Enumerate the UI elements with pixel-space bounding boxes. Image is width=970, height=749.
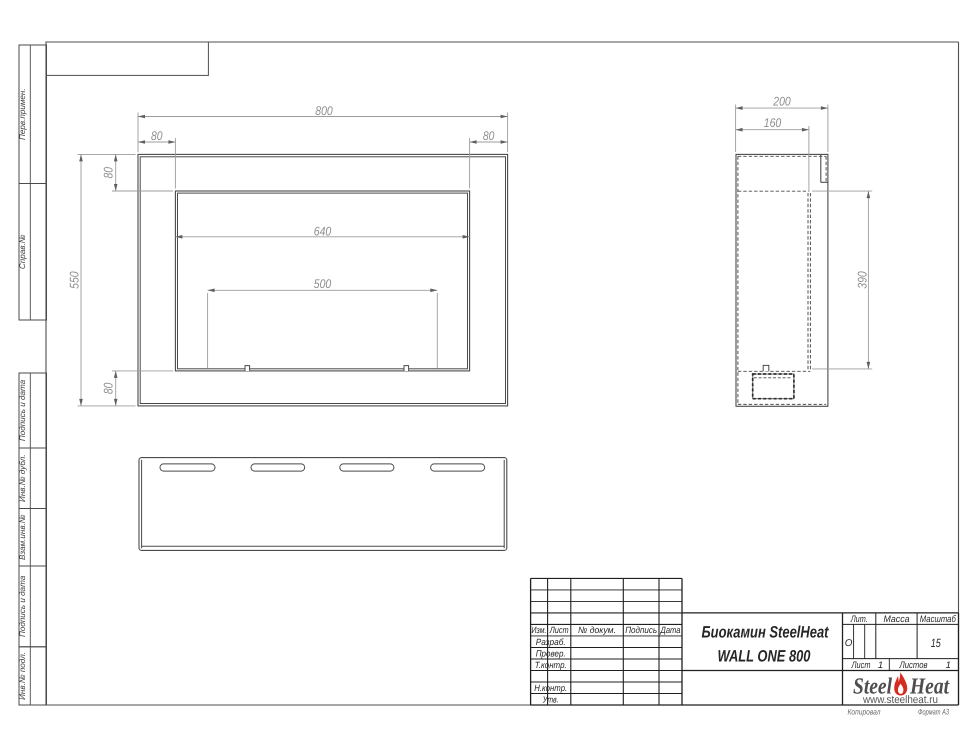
svg-text:Изм.: Изм.: [532, 625, 547, 635]
svg-text:Т.контр.: Т.контр.: [535, 660, 567, 670]
svg-text:15: 15: [931, 636, 941, 650]
svg-text:Инв.№ подл.: Инв.№ подл.: [18, 652, 27, 700]
svg-text:Н.контр.: Н.контр.: [534, 683, 567, 693]
svg-text:Справ.№: Справ.№: [18, 234, 27, 269]
svg-text:80: 80: [101, 383, 115, 395]
svg-text:Лист: Лист: [549, 625, 569, 635]
svg-text:80: 80: [483, 129, 495, 143]
svg-text:Подпись: Подпись: [625, 625, 657, 635]
svg-text:№ докум.: № докум.: [578, 625, 616, 635]
svg-text:200: 200: [772, 95, 790, 109]
svg-text:Разраб.: Разраб.: [536, 637, 566, 647]
svg-text:WALL ONE 800: WALL ONE 800: [718, 648, 812, 666]
svg-text:Лист: Лист: [851, 660, 871, 671]
svg-text:Подпись и дата: Подпись и дата: [18, 575, 27, 637]
svg-text:Дата: Дата: [660, 625, 681, 635]
svg-text:500: 500: [314, 277, 332, 291]
svg-text:80: 80: [101, 167, 115, 179]
svg-text:Лит.: Лит.: [850, 614, 868, 625]
svg-text:Листов: Листов: [899, 660, 928, 671]
svg-text:Инв.№ дубл.: Инв.№ дубл.: [18, 454, 27, 502]
svg-text:О: О: [845, 638, 853, 649]
svg-text:Взам.инв.№: Взам.инв.№: [18, 514, 27, 560]
svg-text:Утв.: Утв.: [542, 695, 559, 705]
svg-text:640: 640: [314, 224, 332, 238]
svg-text:Провер.: Провер.: [536, 648, 566, 658]
svg-text:Масштаб: Масштаб: [920, 614, 957, 625]
svg-text:www.steelheat.ru: www.steelheat.ru: [862, 694, 938, 706]
svg-text:Биокамин SteelHeat: Биокамин SteelHeat: [702, 624, 830, 642]
svg-text:Масса: Масса: [884, 614, 910, 625]
svg-text:550: 550: [68, 271, 82, 289]
svg-text:Формат А3: Формат А3: [918, 708, 949, 717]
svg-text:Перв.примен.: Перв.примен.: [18, 88, 27, 140]
svg-text:800: 800: [315, 104, 333, 118]
svg-text:1: 1: [946, 660, 951, 671]
svg-text:390: 390: [856, 271, 870, 289]
svg-text:160: 160: [764, 116, 782, 130]
svg-text:Копировал: Копировал: [848, 708, 881, 717]
svg-text:1: 1: [878, 660, 883, 671]
svg-text:80: 80: [151, 129, 163, 143]
svg-text:Подпись и дата: Подпись и дата: [18, 379, 27, 441]
